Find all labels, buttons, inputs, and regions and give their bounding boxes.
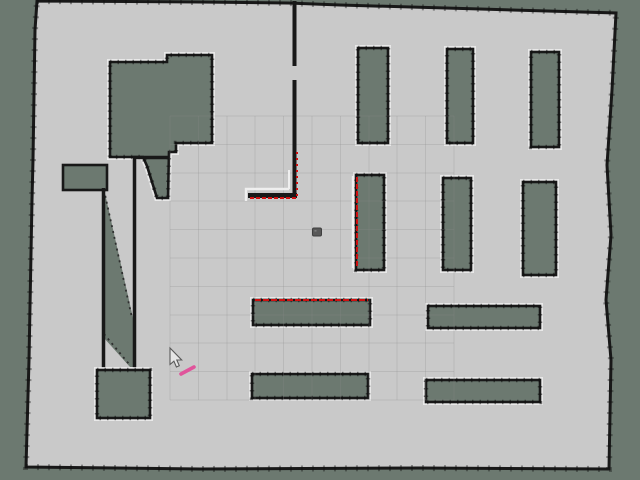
map-viewport[interactable] [0, 0, 640, 480]
pillar-mid-1 [356, 175, 384, 270]
table-mid-right [428, 306, 540, 328]
room-bottom-left [97, 370, 150, 418]
robot-marker[interactable] [313, 228, 322, 236]
pillar-top-3 [531, 52, 559, 147]
table-bottom-left [252, 374, 368, 398]
pillar-top-2 [447, 49, 473, 143]
map-viewer-window [0, 0, 640, 480]
room-left-pocket [63, 165, 107, 190]
table-bottom-right [426, 380, 540, 402]
pillar-top-1 [358, 48, 388, 143]
pillar-mid-2 [443, 178, 471, 270]
pillar-mid-3 [523, 182, 556, 275]
